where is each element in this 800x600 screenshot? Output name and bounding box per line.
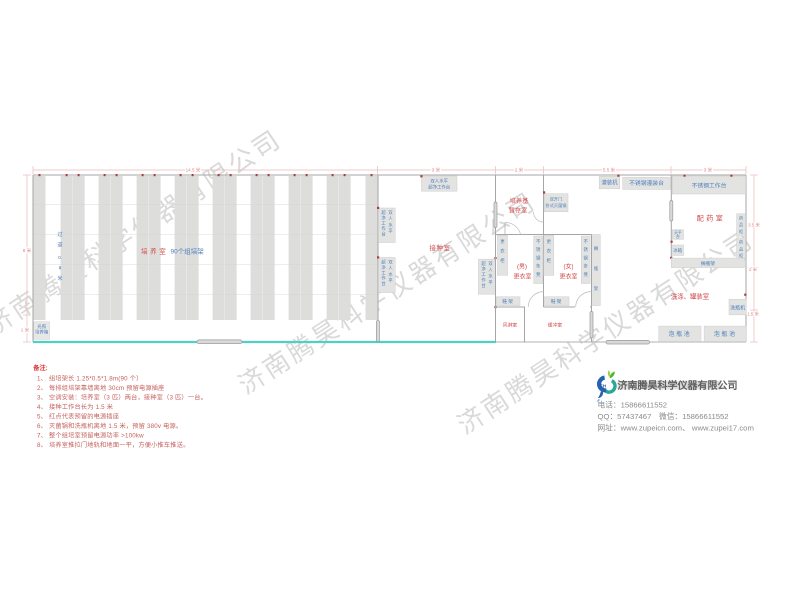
svg-text:4、 接种工作台长为 1.5 米: 4、 接种工作台长为 1.5 米 (37, 403, 113, 411)
svg-text:米: 米 (57, 274, 63, 282)
svg-text:1 米: 1 米 (21, 327, 30, 334)
svg-text:缓冲室: 缓冲室 (548, 322, 563, 329)
svg-text:冰箱: 冰箱 (673, 247, 682, 254)
svg-text:超净工作台: 超净工作台 (381, 259, 386, 288)
svg-text:8 米: 8 米 (23, 247, 32, 254)
svg-text:7、 整个组培室预留电源功率 >100kw: 7、 整个组培室预留电源功率 >100kw (37, 432, 144, 440)
svg-text:备注:: 备注: (32, 364, 47, 372)
svg-text:接种室: 接种室 (430, 243, 451, 252)
svg-text:超净工作台: 超净工作台 (481, 260, 486, 289)
svg-text:3、 空调安装：培养室（3 匹）两台，接种室（3 匹）一台。: 3、 空调安装：培养室（3 匹）两台，接种室（3 匹）一台。 (37, 393, 207, 401)
svg-text:配药室: 配药室 (697, 214, 726, 223)
svg-text:5.5 米: 5.5 米 (603, 167, 616, 174)
svg-text:(男): (男) (517, 264, 527, 271)
svg-text:鞋架: 鞋架 (551, 298, 563, 305)
svg-text:网址：www.zupeicn.com、 www.zupei1: 网址：www.zupeicn.com、 www.zupei17.com (598, 423, 754, 433)
svg-text:济南腾昊科学仪器有限公司: 济南腾昊科学仪器有限公司 (618, 379, 738, 392)
svg-text:超净工作台: 超净工作台 (381, 209, 386, 238)
svg-text:更衣室: 更衣室 (513, 273, 531, 281)
svg-text:1、 组培架长 1.25*0.5*1.8m(90 个）: 1、 组培架长 1.25*0.5*1.8m(90 个） (37, 374, 142, 382)
svg-text:泡瓶池: 泡瓶池 (668, 330, 691, 338)
svg-text:TH: TH (600, 384, 607, 389)
svg-text:双人水平: 双人水平 (488, 261, 493, 286)
svg-text:灌装机: 灌装机 (601, 178, 618, 186)
svg-text:洗瓶机: 洗瓶机 (730, 304, 745, 311)
svg-text:双开门: 双开门 (550, 196, 563, 203)
svg-text:不锈钢工作台: 不锈钢工作台 (692, 182, 727, 190)
svg-text:培养室90个组培架: 培养室90个组培架 (141, 247, 204, 256)
svg-text:5、 红点代表预留的电源插座: 5、 红点代表预留的电源插座 (37, 413, 119, 421)
svg-text:(女): (女) (564, 263, 574, 271)
svg-text:3 米: 3 米 (432, 167, 441, 174)
svg-text:鞋架: 鞋架 (502, 298, 514, 305)
svg-text:台: 台 (676, 234, 680, 239)
svg-text:电话：15866611552: 电话：15866611552 (598, 400, 668, 410)
svg-text:暂存室: 暂存室 (509, 207, 528, 215)
svg-text:2 米: 2 米 (515, 167, 524, 174)
svg-text:培养箱: 培养箱 (35, 328, 49, 335)
svg-text:风淋室: 风淋室 (503, 322, 518, 329)
svg-text:1.5 米: 1.5 米 (747, 311, 759, 318)
svg-text:卧式灭菌锅: 卧式灭菌锅 (546, 202, 567, 209)
svg-text:培养基: 培养基 (510, 197, 529, 205)
svg-text:洗涤、罐装室: 洗涤、罐装室 (671, 292, 710, 301)
svg-text:更衣柜: 更衣柜 (547, 239, 552, 264)
svg-text:2、 每排组培架靠墙离地 30cm 预留电源插座: 2、 每排组培架靠墙离地 30cm 预留电源插座 (37, 384, 165, 392)
svg-text:8、 培养室推拉门地轨和地面一平，方便小推车推送。: 8、 培养室推拉门地轨和地面一平，方便小推车推送。 (37, 441, 189, 449)
svg-text:药品柜: 药品柜 (739, 239, 743, 260)
svg-text:搁瓶架: 搁瓶架 (701, 260, 716, 267)
svg-text:泡瓶池: 泡瓶池 (714, 330, 737, 338)
svg-text:6: 6 (59, 265, 62, 270)
svg-text:药品柜: 药品柜 (739, 214, 743, 235)
svg-text:不锈钢灌装台: 不锈钢灌装台 (629, 179, 664, 187)
svg-text:2 米: 2 米 (749, 266, 758, 273)
svg-text:双人水平: 双人水平 (430, 177, 448, 184)
svg-text:双人水平: 双人水平 (388, 210, 393, 235)
svg-text:更衣柜: 更衣柜 (500, 239, 505, 264)
svg-text:0.: 0. (58, 255, 62, 260)
svg-text:更衣室: 更衣室 (559, 273, 577, 281)
svg-text:超净工作台: 超净工作台 (428, 183, 451, 190)
svg-text:双人水平: 双人水平 (388, 260, 393, 285)
svg-text:3.5 米: 3.5 米 (748, 222, 760, 229)
svg-text:QQ：57437467 微信：15866611552: QQ：57437467 微信：15866611552 (598, 411, 729, 421)
svg-text:3 米: 3 米 (704, 167, 713, 174)
svg-text:6、 灭菌锅和洗瓶机离地 1.5 米，预留 380v 电源。: 6、 灭菌锅和洗瓶机离地 1.5 米，预留 380v 电源。 (37, 422, 182, 430)
svg-text:14.5 米: 14.5 米 (186, 167, 201, 174)
